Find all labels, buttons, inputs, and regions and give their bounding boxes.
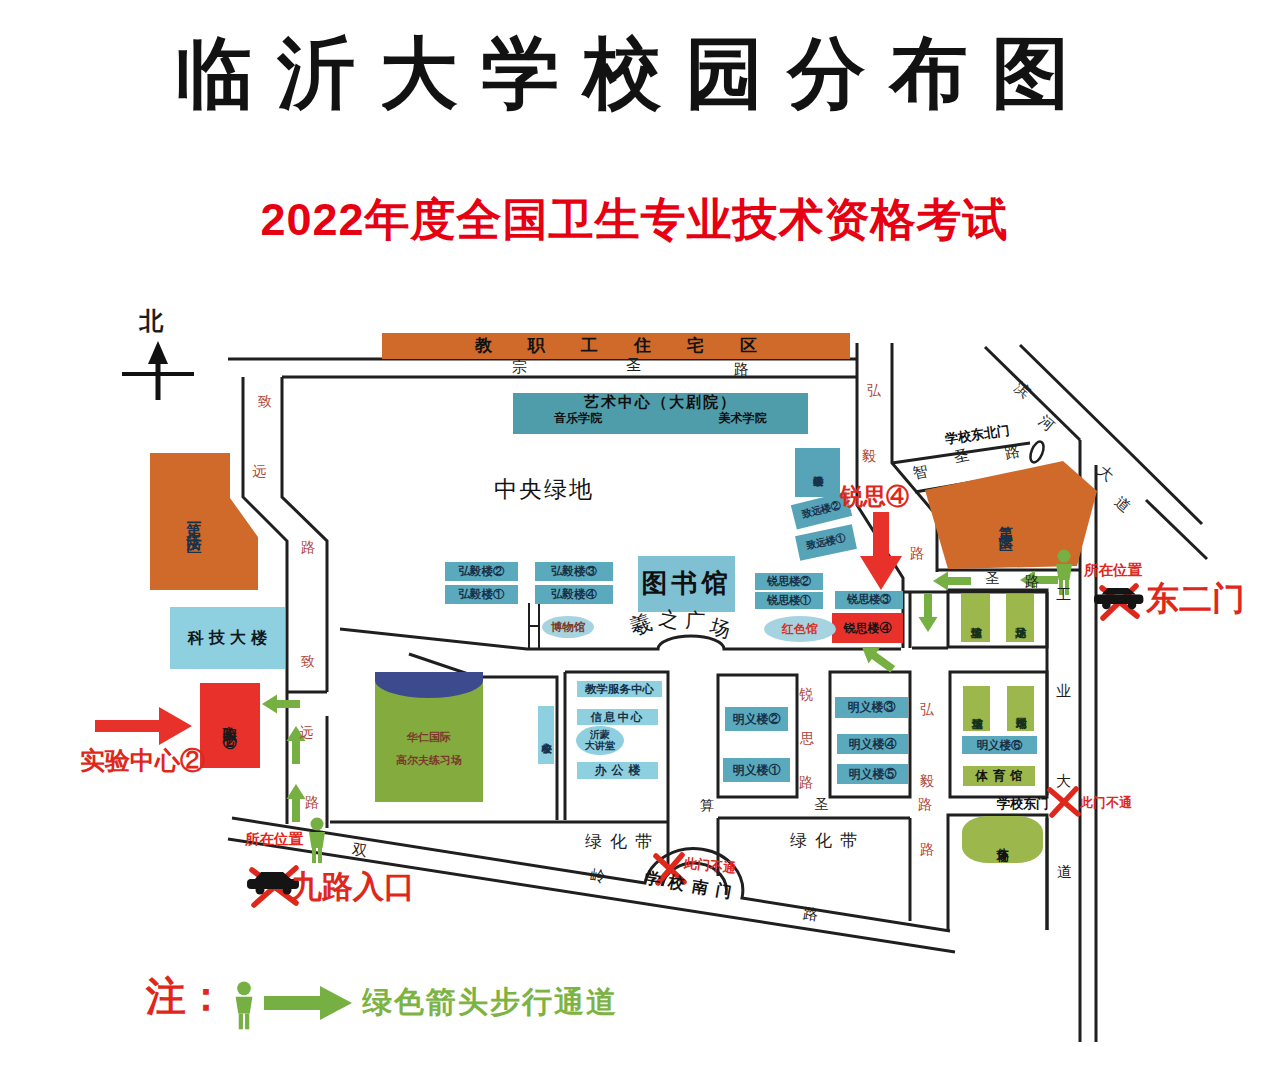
shuangling-road-char: 双 xyxy=(351,840,369,861)
legend-arrow-icon xyxy=(264,986,352,1020)
you-are-here-west: 所在位置 xyxy=(245,830,303,849)
gongye-avenue-char: 业 xyxy=(1056,682,1071,701)
zhiyuan-road-char: 致 xyxy=(258,393,272,411)
zongsheng-east-char: 路 xyxy=(1025,573,1039,591)
map-icons xyxy=(0,0,1269,1071)
legend-walkway-label: 绿色箭头步行通道 xyxy=(362,982,618,1023)
gongye-avenue-char: 大 xyxy=(1056,772,1071,791)
walk-arrow-west-left xyxy=(933,572,971,591)
north-label: 北 xyxy=(139,305,163,337)
hongyi-road-char: 弘 xyxy=(867,382,881,400)
red-arrow-to-experiment xyxy=(95,707,192,745)
walk-arrow-to-experiment xyxy=(262,695,300,714)
ruisi4-callout: 锐思④ xyxy=(840,481,909,512)
hongyi-road-char: 路 xyxy=(920,841,934,859)
hongyi-road-char: 毅 xyxy=(920,773,934,791)
jiulu-entrance-label: 九路入口 xyxy=(291,866,415,908)
blocked-east-label: 此门不通 xyxy=(1080,794,1132,812)
zhiyuan-road-char: 远 xyxy=(252,463,266,481)
hongyi-road-char: 弘 xyxy=(920,701,934,719)
person-icon-legend xyxy=(236,982,253,1030)
zhiyuan-road-char: 路 xyxy=(305,794,319,812)
greenbelt-west-label: 绿化带 xyxy=(585,830,660,853)
zongsheng-road-char: 路 xyxy=(734,360,749,379)
page-title: 临沂大学校园分布图 xyxy=(0,22,1269,127)
red-arrow-to-ruisi4 xyxy=(860,512,902,590)
ruisi-road-char: 锐 xyxy=(799,686,813,704)
ruisi-road-char: 思 xyxy=(800,730,814,748)
gongye-avenue-char: 工 xyxy=(1056,586,1071,605)
ruisi-road-char: 路 xyxy=(799,774,813,792)
central-green-label: 中央绿地 xyxy=(494,474,594,505)
suansheng-road-char: 圣 xyxy=(814,796,828,814)
walk-arrow-up-2 xyxy=(287,784,306,822)
zhiyuan-road-char: 致 xyxy=(301,653,315,671)
x-mark-east-gate xyxy=(1050,789,1078,815)
hongyi-road-char: 路 xyxy=(918,796,932,814)
greenbelt-east-label: 绿化带 xyxy=(790,829,865,852)
person-icon-west xyxy=(309,818,325,864)
exam-center-callout: 实验中心② xyxy=(80,744,205,777)
hongyi-road-char: 毅 xyxy=(862,448,876,466)
walk-arrow-to-ruisi4 xyxy=(856,639,898,677)
shuangling-road-char: 路 xyxy=(802,904,820,925)
walk-arrow-down xyxy=(919,594,938,632)
hongyi-road-char: 路 xyxy=(910,545,924,563)
shuangling-road-char: 岭 xyxy=(589,866,607,887)
east2-gate-label: 东二门 xyxy=(1146,577,1245,622)
you-are-here-east: 所在位置 xyxy=(1084,561,1142,580)
zhiyuan-road-char: 远 xyxy=(299,724,313,742)
zongsheng-road-char: 宗 xyxy=(512,358,527,377)
page-subtitle: 2022年度全国卫生专业技术资格考试 xyxy=(0,190,1269,250)
gongye-avenue-char: 道 xyxy=(1057,863,1072,882)
zhiyuan-road-char: 路 xyxy=(301,539,315,557)
zongsheng-road-char: 圣 xyxy=(626,356,641,375)
east-gate-label: 学校东门 xyxy=(997,795,1049,813)
xizhi-square-label: 羲 之 广 场 xyxy=(630,610,731,640)
zongsheng-east-char: 圣 xyxy=(985,570,999,588)
legend-note-label: 注： xyxy=(146,969,226,1024)
suansheng-road-char: 算 xyxy=(700,797,714,815)
